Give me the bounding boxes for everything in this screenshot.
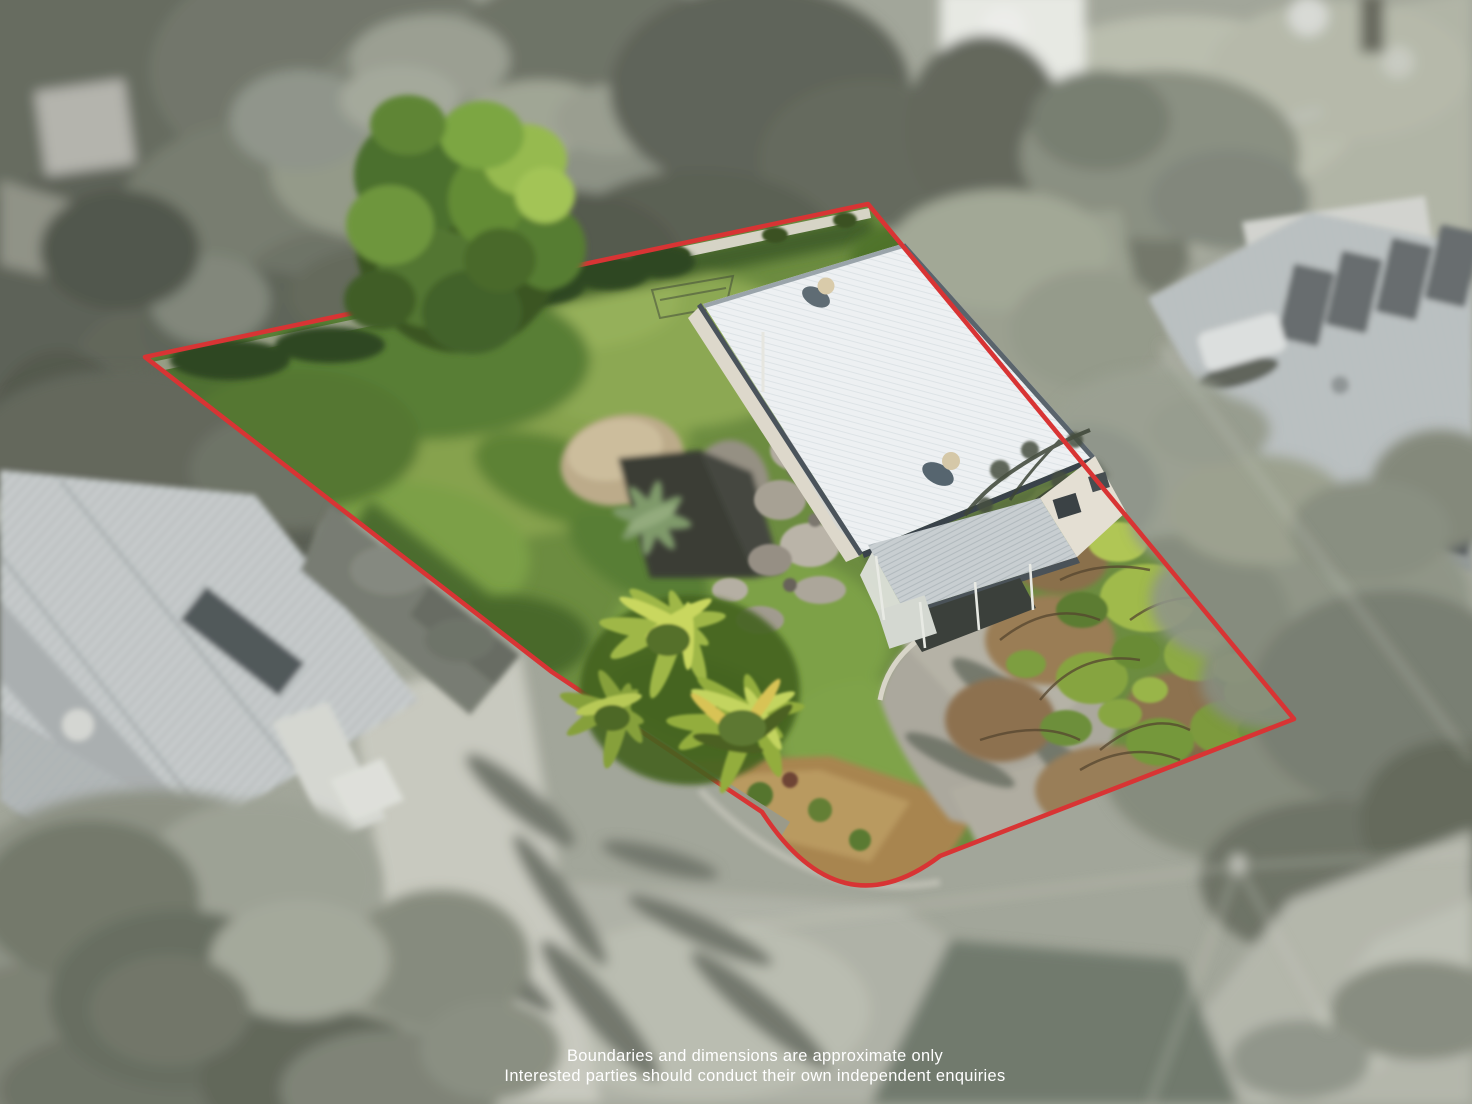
svg-text:Interested parties should cond: Interested parties should conduct their … bbox=[504, 1067, 1005, 1085]
svg-text:Boundaries and dimensions are: Boundaries and dimensions are approximat… bbox=[567, 1047, 943, 1065]
